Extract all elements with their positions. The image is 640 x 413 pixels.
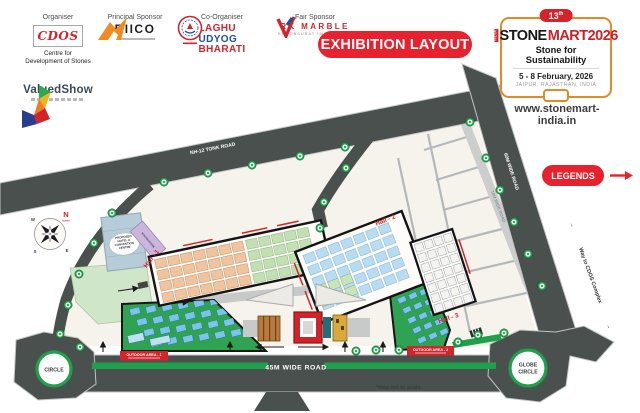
tree-marker — [395, 346, 403, 354]
gate-wing-right — [348, 318, 370, 337]
booth-cell — [226, 277, 239, 288]
tree-marker — [316, 224, 324, 232]
riico-logo-icon — [94, 17, 128, 41]
compass-rose: W S E N NORTH — [31, 210, 70, 254]
booth-cell — [182, 263, 195, 274]
globe-circle-label-1: GLOBE — [519, 363, 538, 369]
booth-cell — [154, 257, 167, 268]
booth-cell — [198, 272, 211, 283]
road-median-left — [92, 363, 268, 370]
way-arrow-icon: → — [568, 221, 575, 228]
way-arrow-icon: → — [605, 323, 612, 330]
booth-cell — [236, 264, 249, 275]
cdos-logo-text: CDOS — [37, 29, 78, 43]
tree-marker — [320, 198, 328, 206]
booth-cell — [185, 274, 198, 285]
tree-marker — [341, 143, 349, 151]
edition-badge: 13th — [540, 9, 573, 22]
organiser-name: Centre for Development of Stones — [20, 50, 96, 65]
circle-junction-right — [488, 326, 614, 402]
organiser-label: Organiser — [20, 14, 96, 21]
tree-marker — [538, 282, 546, 290]
booth-cell — [195, 260, 208, 271]
globe-circle-label-2: CIRCLE — [518, 370, 538, 376]
booth-cell — [157, 269, 170, 280]
tree-marker — [524, 250, 532, 258]
booth-cell — [265, 269, 278, 280]
booth-cell — [219, 244, 232, 255]
booth-cell — [200, 283, 213, 294]
event-venue: JAIPUR, RAJASTHAN, INDIA — [505, 82, 607, 88]
booth-cell — [276, 255, 289, 266]
gate-building-right — [333, 315, 347, 341]
booth-cell — [162, 291, 175, 302]
tree-marker — [64, 301, 72, 309]
tree-marker — [90, 239, 98, 247]
booth-cell — [245, 238, 258, 249]
divider — [513, 68, 599, 69]
tree-marker — [76, 343, 84, 351]
way-to-cdos: → Way to CDOS Complex → — [568, 221, 612, 330]
circle-left-label: CIRCLE — [44, 368, 64, 374]
tree-marker — [466, 118, 474, 126]
booth-cell — [273, 244, 286, 255]
event-wordmark: INDIA STONE MART2026 — [505, 28, 607, 44]
rk-marble-logo-icon — [272, 16, 302, 38]
legends-label: LEGENDS — [551, 171, 595, 181]
booth-cell — [297, 227, 310, 238]
tree-marker — [352, 347, 360, 355]
booth-cell — [213, 280, 226, 291]
laghu-udyog-wordmark: LAGHU UDYOG BHARATI — [198, 24, 245, 56]
event-dates: 5 - 8 February, 2026 — [505, 72, 607, 81]
booth-cell — [248, 249, 261, 260]
valuedshow-block: ValuedShow — [14, 84, 102, 101]
compass-s: S — [34, 249, 37, 254]
cdos-logo: CDOS — [33, 25, 83, 47]
booth-cell — [159, 280, 172, 291]
booth-cell — [284, 230, 297, 241]
tree-marker — [496, 186, 504, 194]
booth-cell — [170, 266, 183, 277]
gate-wing-left — [243, 320, 258, 337]
laghu-udyog-emblem-icon — [176, 14, 204, 46]
booth-cell — [253, 272, 266, 283]
booth-cell — [271, 233, 284, 244]
brand-stone: STONE — [500, 28, 547, 44]
booth-cell — [210, 269, 223, 280]
tree-marker — [454, 338, 462, 346]
tree-marker — [342, 164, 350, 172]
co-organiser-block: Co-Organiser LAGHU UDYOG BHARATI — [176, 14, 268, 56]
organiser-block: Organiser CDOS Centre for Development of… — [20, 14, 96, 65]
booth-cell — [172, 277, 185, 288]
booth-cell — [187, 286, 200, 297]
booth-cell — [261, 247, 274, 258]
booth-cell — [278, 266, 291, 277]
booth-cell — [167, 255, 180, 266]
event-card-tab — [543, 89, 569, 102]
legends: LEGENDS — [542, 165, 633, 186]
booth-cell — [193, 249, 206, 260]
brand-prefix: INDIA — [494, 29, 498, 42]
tree-marker — [372, 346, 380, 354]
map-scale-note: *Map not to scale. — [376, 385, 422, 391]
road-median-right — [324, 363, 496, 370]
gate-panel-teal — [323, 317, 331, 338]
tree-marker — [482, 154, 490, 162]
exhibition-layout-poster: CIRCLE GLOBE CIRCLE NH-12 TONK ROAD 60M … — [0, 0, 640, 413]
legends-arrow-head-icon — [625, 171, 633, 180]
exhibition-layout-banner: EXHIBITION LAYOUT — [318, 31, 472, 58]
booth-cell — [180, 252, 193, 263]
compass-w: W — [31, 217, 35, 222]
event-tagline: Stone for Sustainability — [505, 45, 607, 65]
tree-marker — [248, 161, 256, 169]
outdoor-area-1-label: OUTDOOR AREA - 1 — [126, 353, 161, 357]
booth-cell — [223, 266, 236, 277]
booth-cell — [263, 258, 276, 269]
road-label-45m: 45M WIDE ROAD — [265, 365, 326, 372]
compass-e: E — [66, 248, 69, 253]
booth-cell — [239, 275, 252, 286]
tree-marker — [160, 178, 168, 186]
tree-marker — [75, 270, 83, 278]
booth-cell — [250, 261, 263, 272]
principal-sponsor-block: Principal Sponsor RIICO — [94, 14, 176, 40]
tree-marker — [500, 329, 508, 337]
valuedshow-logo-icon — [14, 84, 58, 130]
event-card: 13th INDIA STONE MART2026 Stone for Sust… — [500, 17, 612, 98]
tree-marker — [474, 331, 482, 339]
booth-cell — [208, 258, 221, 269]
road-south-stub — [254, 392, 310, 411]
tree-marker — [56, 330, 64, 338]
way-to-cdos-label: Way to CDOS Complex — [577, 247, 603, 304]
compass-north: NORTH — [62, 221, 70, 223]
booth-cell — [221, 255, 234, 266]
tree-marker — [510, 218, 518, 226]
brand-mart: MART2026 — [548, 28, 618, 44]
event-website: www.stonemart-india.in — [498, 103, 616, 127]
road-45m — [58, 355, 508, 392]
outdoor-area-2-label: OUTDOOR AREA - 2 — [413, 348, 448, 352]
booth-cell — [231, 241, 244, 252]
tree-marker — [108, 209, 116, 217]
booth-cell — [206, 246, 219, 257]
booth-cell — [174, 288, 187, 299]
booth-cell — [258, 235, 271, 246]
booth-cell — [234, 252, 247, 263]
compass-n: N — [63, 210, 68, 219]
tree-marker — [296, 152, 304, 160]
tree-marker — [204, 169, 212, 177]
